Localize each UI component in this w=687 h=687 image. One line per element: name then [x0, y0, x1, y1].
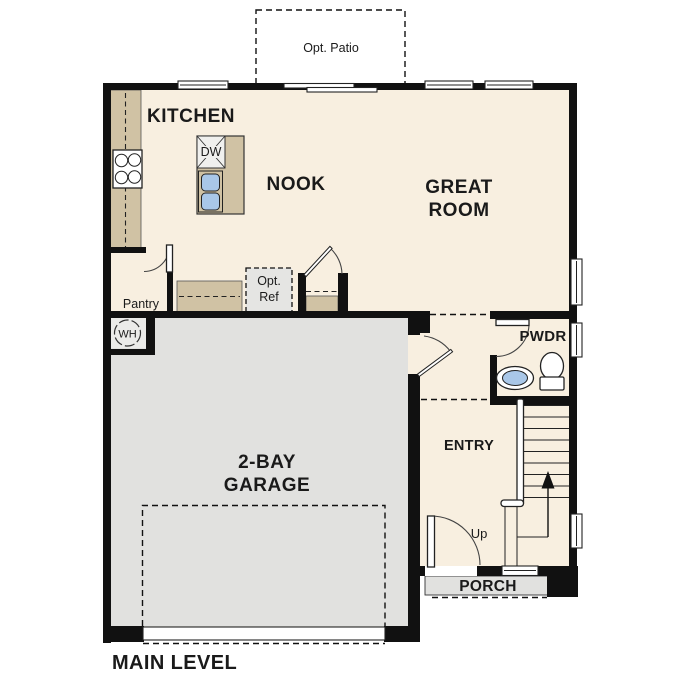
wall-entry-bottom-mid	[477, 566, 502, 576]
sink-basin-bottom	[202, 193, 220, 210]
stair-rail-return	[501, 500, 524, 507]
floor-plan-main-level: Opt. Patio WH DW Op	[0, 0, 687, 687]
dw-label: DW	[201, 145, 222, 159]
water-heater-closet: WH	[111, 317, 146, 348]
wall-wh-right	[146, 314, 155, 352]
kitchen-label: KITCHEN	[147, 106, 235, 127]
pantry-label: Pantry	[123, 297, 160, 311]
main-level-title: MAIN LEVEL	[112, 652, 237, 674]
wall-pwdr-top	[490, 311, 570, 319]
great-room-label-1: GREAT	[425, 177, 493, 198]
closet-shelf	[306, 296, 338, 312]
garage-label-1: 2-BAY	[238, 452, 296, 473]
wall-garage-bottom-left	[103, 626, 144, 642]
opt-ref-label-2: Ref	[259, 290, 279, 304]
wall-entry-bottom-left	[408, 566, 426, 576]
wall-closet-jamb-left	[298, 273, 306, 314]
wall-garage-right-lower	[408, 374, 420, 642]
wall-hall-corner	[420, 311, 430, 333]
toilet-tank-icon	[540, 377, 564, 390]
sink-basin-top	[202, 174, 220, 191]
entry-label: ENTRY	[444, 438, 494, 454]
wall-pwdr-bottom	[490, 396, 570, 405]
wh-label: WH	[118, 329, 136, 341]
garage-label-2: GARAGE	[224, 475, 310, 496]
wall-closet-jamb-right	[338, 273, 348, 314]
pwdr-label: PWDR	[519, 328, 566, 345]
opt-patio-label: Opt. Patio	[303, 41, 359, 55]
wall-wh-bottom	[103, 349, 155, 355]
wall-garage-bottom-right	[384, 626, 420, 642]
pwdr-sink-basin	[503, 371, 528, 386]
great-room-label-2: ROOM	[428, 200, 489, 221]
up-label: Up	[471, 526, 488, 541]
wall-garage-right-upper	[408, 311, 420, 335]
wall-pantry-top	[103, 247, 146, 253]
floor-plan-canvas: Opt. Patio WH DW Op	[0, 0, 687, 687]
patio-slider-panel-right	[307, 88, 377, 93]
wall-pantry-right	[167, 271, 173, 314]
nook-label: NOOK	[267, 174, 326, 195]
kitchen-island: DW	[197, 136, 244, 214]
opt-ref-label-1: Opt.	[257, 274, 281, 288]
stair-rail	[517, 399, 524, 505]
garage-door-panel	[143, 627, 385, 640]
toilet-bowl-icon	[541, 353, 564, 380]
wall-left	[103, 83, 111, 643]
porch-label: PORCH	[459, 578, 516, 595]
wall-porch-corner	[547, 574, 578, 597]
opt-ref: Opt. Ref	[246, 268, 292, 312]
